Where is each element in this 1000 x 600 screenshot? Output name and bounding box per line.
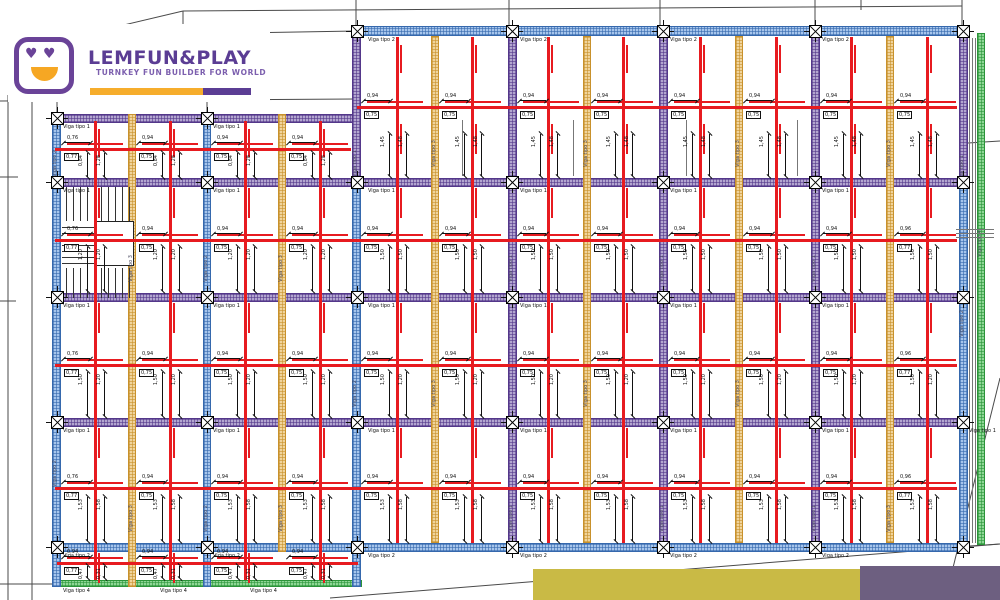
rebar-lap (854, 45, 856, 73)
dim-box: 0,75 (289, 369, 304, 377)
dim-box: 0,75 (214, 492, 229, 500)
dim-box: 0,75 (289, 153, 304, 161)
rebar-lap (854, 303, 856, 333)
dim-value-vertical: 1,50 (229, 374, 234, 385)
dim-line-vertical (162, 247, 163, 291)
dim-line-vertical (540, 134, 541, 176)
column (506, 25, 519, 38)
dim-line (823, 358, 849, 359)
dim-value: 0,94 (292, 549, 303, 555)
dim-line (746, 481, 772, 482)
dim-value: 0,94 (217, 135, 228, 141)
dim-value-vertical: 1,20 (625, 374, 630, 385)
dim-line-vertical (389, 497, 390, 541)
dim-line-vertical (919, 134, 920, 176)
column (506, 541, 519, 554)
dim-line (520, 481, 546, 482)
beam-label-vertical: Viga tipo 1 (509, 255, 514, 282)
dim-box: 0,75 (289, 567, 304, 575)
beam-label-vertical: Viga tipo 3 (279, 255, 284, 282)
column (957, 176, 970, 189)
rebar-lap (597, 482, 653, 484)
dim-box: 0,77 (64, 567, 79, 575)
rebar-lap (475, 45, 477, 73)
dim-value: 0,94 (826, 474, 837, 480)
rebar-lap (779, 45, 781, 73)
rebar-row (55, 364, 957, 367)
rebar-lap (475, 188, 477, 218)
rebar-lap (703, 428, 705, 458)
dim-value: 0,94 (445, 226, 456, 232)
rebar-lap (930, 428, 932, 458)
dim-value-vertical: 1,20 (97, 374, 102, 385)
dim-value-vertical: 1,50 (911, 249, 916, 260)
dim-value-vertical: 1,50 (532, 374, 537, 385)
dim-value-vertical: 0,47 (154, 568, 159, 579)
dim-line (139, 556, 165, 557)
beam-label-vertical: Viga tipo 1 (509, 505, 514, 532)
rebar-lap (703, 188, 705, 218)
rebar-lap (551, 188, 553, 218)
dim-value: 0,94 (142, 351, 153, 357)
beam-label: Viga tipo 1 (670, 428, 697, 434)
gray-rebar-line (956, 237, 994, 238)
gray-rebar-line (956, 233, 994, 234)
beam-label-vertical: Viga tipo 2 (204, 255, 209, 282)
beam-label-vertical: Viga tipo 2 (204, 505, 209, 532)
dim-line-vertical (389, 134, 390, 176)
beam-label: Viga tipo 1 (213, 303, 240, 309)
dim-value-vertical: 1,50 (684, 249, 689, 260)
dim-line-vertical (254, 247, 255, 291)
dim-value: 0,94 (749, 351, 760, 357)
column (657, 291, 670, 304)
dim-line-vertical (329, 372, 330, 416)
dim-line (214, 481, 240, 482)
gray-rebar-line (797, 120, 798, 176)
dim-line (823, 233, 849, 234)
dim-value-vertical: 1,20 (172, 374, 177, 385)
beam-label-vertical: Viga tipo 3 (129, 255, 134, 282)
beam-label: Viga tipo 1 (822, 428, 849, 434)
dim-line-vertical (709, 247, 710, 291)
dim-value-vertical: 1,53 (835, 499, 840, 510)
beam-label-vertical: Viga tipo 2 (960, 310, 965, 337)
dim-value-vertical: 1,48 (929, 136, 934, 147)
beam-label: Viga tipo 2 (368, 553, 395, 559)
dim-value-vertical: 1,58 (247, 499, 252, 510)
beam-label: Viga tipo 4 (160, 588, 187, 594)
rebar-lap (930, 303, 932, 333)
beam-label: Viga tipo 1 (63, 188, 90, 194)
beam-label: Viga tipo 1 (520, 188, 547, 194)
v-beam-yellow (583, 36, 591, 543)
column (506, 291, 519, 304)
dim-value-vertical: 1,50 (835, 249, 840, 260)
dim-value-vertical: 1,20 (97, 249, 102, 260)
dim-value: 0,76 (67, 351, 78, 357)
beam-label: Viga tipo 2 (368, 37, 395, 43)
dim-value-vertical: 0,84 (229, 155, 234, 166)
dim-value: 0,76 (67, 226, 78, 232)
stair-step (80, 268, 81, 298)
rebar-lap (248, 303, 250, 333)
dim-line-vertical (481, 134, 482, 176)
v-beam-yellow (431, 36, 439, 543)
column (351, 25, 364, 38)
dim-value: 0,76 (67, 474, 78, 480)
dim-value-vertical: 1,20 (79, 249, 84, 260)
dim-box: 0,75 (214, 567, 229, 575)
dim-value-vertical: 1,53 (154, 499, 159, 510)
rebar-lap (626, 45, 628, 73)
dim-line (139, 142, 165, 143)
dim-box: 0,75 (594, 111, 609, 119)
dim-value-vertical: 1,53 (684, 499, 689, 510)
rebar-column (547, 37, 550, 543)
column (201, 291, 214, 304)
dim-line-vertical (254, 153, 255, 177)
dim-line (594, 233, 620, 234)
column (809, 416, 822, 429)
beam-label: Viga tipo 1 (63, 124, 90, 130)
dim-line-vertical (464, 134, 465, 176)
dim-value: 0,94 (445, 93, 456, 99)
rebar-row (55, 487, 957, 490)
dim-line-vertical (237, 153, 238, 177)
rebar-lap (400, 188, 402, 218)
dim-line-vertical (237, 566, 238, 578)
dim-value-vertical: 1,48 (399, 136, 404, 147)
dim-line-vertical (389, 372, 390, 416)
dim-line-vertical (843, 247, 844, 291)
dim-value-vertical: 1,50 (154, 374, 159, 385)
rebar-column (850, 37, 853, 543)
stair-step (108, 187, 109, 221)
column (351, 416, 364, 429)
stair-step (108, 268, 109, 298)
dim-line (520, 100, 546, 101)
rebar-lap (597, 359, 653, 361)
dim-line-vertical (919, 372, 920, 416)
dim-value-vertical: 1,48 (853, 136, 858, 147)
dim-value: 0,94 (749, 474, 760, 480)
dim-line-vertical (692, 497, 693, 541)
logo-title: LEMFUN&PLAY (88, 47, 251, 69)
dim-line-vertical (540, 497, 541, 541)
beam-label-vertical: Viga tipo 3 (736, 380, 741, 407)
beam-label: Viga tipo 1 (520, 303, 547, 309)
dim-line-vertical (312, 153, 313, 177)
dim-box: 0,75 (289, 492, 304, 500)
dim-box: 0,75 (139, 244, 154, 252)
dim-value-vertical: 1,58 (929, 499, 934, 510)
dim-value: 0,94 (749, 93, 760, 99)
beam-label: Viga tipo 1 (368, 428, 395, 434)
rebar-lap (400, 303, 402, 333)
dim-line (442, 233, 468, 234)
dim-line-vertical (104, 497, 105, 541)
heart-eye-right-icon: ♥ (43, 47, 56, 61)
column (51, 541, 64, 554)
dim-line-vertical (406, 497, 407, 541)
dim-line-vertical (329, 247, 330, 291)
rebar-lap (248, 428, 250, 458)
drawing-sheet: Viga tipo 2Viga tipo 2Viga tipo 2Viga ti… (0, 0, 1000, 600)
column (809, 541, 822, 554)
dim-box: 0,75 (289, 244, 304, 252)
dim-value-vertical: 1,20 (172, 249, 177, 260)
beam-label: Viga tipo 2 (822, 37, 849, 43)
rebar-lap (779, 303, 781, 333)
dim-box: 0,75 (139, 492, 154, 500)
stair-step (101, 268, 102, 298)
beam-label: Viga tipo 4 (63, 588, 90, 594)
beam-label: Viga tipo 1 (213, 428, 240, 434)
dim-value-vertical: 1,50 (835, 374, 840, 385)
dim-line-vertical (632, 497, 633, 541)
rebar-lap (367, 101, 423, 103)
dim-value: 0,94 (292, 135, 303, 141)
rebar-lap (400, 45, 402, 73)
rebar-lap (323, 188, 325, 218)
smiley-heart-eyes-icon: ♥ ♥ (14, 37, 74, 94)
dim-value-vertical: 0,31 (97, 568, 102, 579)
dim-value-vertical: 1,53 (381, 499, 386, 510)
dim-line-vertical (768, 497, 769, 541)
rebar-lap (854, 188, 856, 218)
dim-value-vertical: 0,84 (304, 155, 309, 166)
rebar-lap (626, 188, 628, 218)
dim-line-vertical (692, 247, 693, 291)
heart-eye-left-icon: ♥ (25, 47, 38, 61)
dim-value-vertical: 1,20 (247, 374, 252, 385)
dim-line (364, 481, 390, 482)
dim-line (289, 233, 315, 234)
dim-line (214, 358, 240, 359)
rebar-lap (826, 234, 882, 236)
beam-label: Viga tipo 1 (822, 188, 849, 194)
beam-label: Viga tipo 4 (250, 588, 277, 594)
column (506, 176, 519, 189)
dim-line-vertical (785, 134, 786, 176)
dim-line-vertical (709, 497, 710, 541)
dim-line-vertical (389, 247, 390, 291)
dim-value-vertical: 0,31 (172, 568, 177, 579)
dim-value-vertical: 0,47 (79, 568, 84, 579)
rebar-lap (523, 482, 579, 484)
dim-line-vertical (104, 566, 105, 578)
dim-value-vertical: 1,50 (399, 249, 404, 260)
dim-box: 0,77 (64, 369, 79, 377)
dim-box: 0,75 (364, 492, 379, 500)
column (657, 416, 670, 429)
dim-value-vertical: 1,20 (778, 374, 783, 385)
beam-label-vertical: Viga tipo 3 (584, 380, 589, 407)
beam-label-vertical: Viga tipo 3 (432, 380, 437, 407)
rebar-lap (323, 303, 325, 333)
dim-line-vertical (557, 134, 558, 176)
dim-line-vertical (843, 497, 844, 541)
dim-value-vertical: 1,45 (607, 136, 612, 147)
rebar-column (94, 121, 97, 580)
beam-label-vertical: Viga tipo 3 (279, 505, 284, 532)
dim-value-vertical: 1,20 (929, 374, 934, 385)
dim-line-vertical (615, 134, 616, 176)
dim-line-vertical (843, 372, 844, 416)
dim-value-vertical: 1,50 (607, 374, 612, 385)
dim-line-vertical (237, 497, 238, 541)
beam-label: Viga tipo 1 (969, 428, 996, 434)
rebar-lap (367, 359, 423, 361)
rebar-lap (248, 129, 250, 157)
dim-line-vertical (104, 153, 105, 177)
rebar-lap (551, 303, 553, 333)
dim-value: 0,94 (142, 135, 153, 141)
dim-line (897, 481, 923, 482)
dim-box: 0,75 (897, 111, 912, 119)
dim-line (594, 481, 620, 482)
dim-value-vertical: 1,45 (532, 136, 537, 147)
smile-mouth-icon (31, 67, 58, 81)
dim-line-vertical (162, 153, 163, 177)
dim-value-vertical: 1,20 (399, 374, 404, 385)
dim-line-vertical (860, 247, 861, 291)
dim-value: 0,94 (674, 226, 685, 232)
dim-line (671, 358, 697, 359)
dim-value-vertical: 1,58 (778, 499, 783, 510)
dim-line (897, 100, 923, 101)
dim-value-vertical: 1,48 (702, 136, 707, 147)
dim-line-vertical (709, 372, 710, 416)
rebar-lap (703, 303, 705, 333)
dim-value-vertical: 1,58 (853, 499, 858, 510)
dim-value: 0,94 (292, 474, 303, 480)
rebar-lap (367, 482, 423, 484)
dim-value: 0,94 (367, 474, 378, 480)
dim-value: 0,94 (597, 351, 608, 357)
dim-value: 0,94 (217, 226, 228, 232)
rebar-column (169, 121, 172, 580)
rebar-column (396, 37, 399, 543)
dim-value: 0,94 (597, 226, 608, 232)
dim-line-vertical (632, 247, 633, 291)
dim-value-vertical: 1,48 (550, 136, 555, 147)
rebar-lap (523, 234, 579, 236)
stair-step (122, 187, 123, 221)
rebar-column (926, 37, 929, 543)
dim-value: 0,94 (217, 351, 228, 357)
dim-box: 0,77 (64, 244, 79, 252)
beam-label-vertical: Viga tipo 2 (53, 460, 58, 487)
dim-value-vertical: 0,47 (304, 568, 309, 579)
dim-value: 0,94 (523, 474, 534, 480)
beam-label: Viga tipo 1 (368, 188, 395, 194)
dim-value: 0,76 (67, 135, 78, 141)
rebar-lap (551, 428, 553, 458)
dim-value-vertical: 1,48 (625, 136, 630, 147)
dim-value-vertical: 1,58 (322, 499, 327, 510)
column (506, 416, 519, 429)
dim-line-vertical (87, 372, 88, 416)
dim-value-vertical: 1,50 (702, 249, 707, 260)
dim-value-vertical: 1,45 (456, 136, 461, 147)
dim-value: 0,96 (900, 351, 911, 357)
dim-value-vertical: 1,50 (79, 374, 84, 385)
rebar-lap (173, 303, 175, 333)
dim-line-vertical (254, 566, 255, 578)
rebar-row (55, 239, 957, 242)
dim-box: 0,75 (364, 111, 379, 119)
dim-line-vertical (632, 372, 633, 416)
dim-line-vertical (254, 372, 255, 416)
dim-value: 0,94 (826, 93, 837, 99)
column (51, 176, 64, 189)
dim-line-vertical (615, 497, 616, 541)
dim-value-vertical: 1,50 (911, 374, 916, 385)
column (351, 291, 364, 304)
rebar-lap (597, 234, 653, 236)
dim-value: 0,94 (367, 351, 378, 357)
rebar-lap (674, 234, 730, 236)
dim-value-vertical: 1,53 (79, 499, 84, 510)
dim-line (520, 233, 546, 234)
dim-value-vertical: 1,20 (702, 374, 707, 385)
dim-line-vertical (237, 247, 238, 291)
dim-line-vertical (464, 247, 465, 291)
dim-line (442, 100, 468, 101)
dim-line-vertical (329, 566, 330, 578)
beam-label-vertical: Viga tipo 1 (812, 255, 817, 282)
rebar-column (319, 121, 322, 580)
beam-label-vertical: Viga tipo 3 (432, 140, 437, 167)
dim-line-vertical (936, 247, 937, 291)
dim-value-vertical: 1,58 (474, 499, 479, 510)
column (957, 416, 970, 429)
column (957, 25, 970, 38)
dim-value-vertical: 1,20 (474, 374, 479, 385)
dim-line-vertical (329, 497, 330, 541)
dim-value-vertical: 1,53 (304, 499, 309, 510)
beam-label-vertical: Viga tipo 4 (978, 230, 983, 257)
v-beam-green (977, 33, 985, 545)
beam-label: Viga tipo 1 (368, 303, 395, 309)
beam-label: Viga tipo 1 (670, 303, 697, 309)
dim-line (671, 100, 697, 101)
dim-value-vertical: 1,53 (760, 499, 765, 510)
dim-line-vertical (936, 497, 937, 541)
rebar-lap (826, 359, 882, 361)
dim-value: 0,94 (523, 351, 534, 357)
dim-line-vertical (87, 153, 88, 177)
stair-step (115, 187, 116, 221)
beam-label-vertical: Viga tipo 1 (660, 255, 665, 282)
dim-value-vertical: 1,28 (322, 155, 327, 166)
rebar-lap (323, 129, 325, 157)
dim-line-vertical (919, 497, 920, 541)
stair-step (122, 268, 123, 298)
dim-line-vertical (557, 497, 558, 541)
beam-label: Viga tipo 2 (670, 553, 697, 559)
rebar-lap (173, 129, 175, 157)
dim-value-vertical: 1,58 (399, 499, 404, 510)
dim-line-vertical (785, 247, 786, 291)
dim-box: 0,75 (442, 111, 457, 119)
dim-value: 0,96 (900, 474, 911, 480)
dim-value-vertical: 1,28 (172, 155, 177, 166)
dim-line-vertical (860, 134, 861, 176)
column (51, 291, 64, 304)
